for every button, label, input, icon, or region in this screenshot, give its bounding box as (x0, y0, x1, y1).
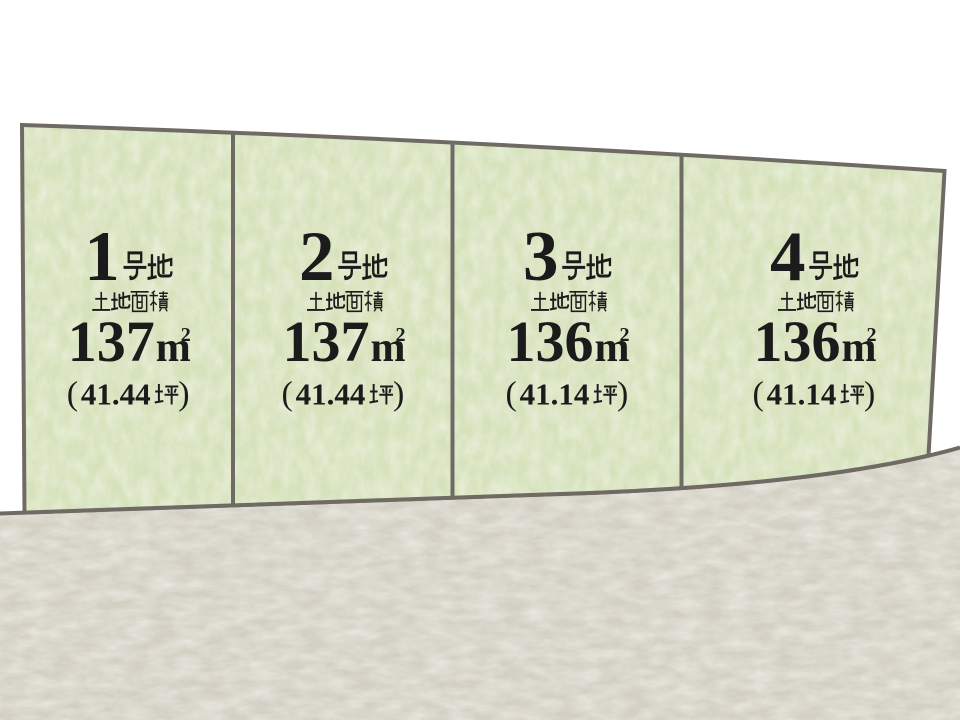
svg-text:): ) (617, 376, 628, 413)
svg-text:137: 137 (68, 309, 155, 374)
svg-text:): ) (864, 376, 875, 413)
svg-text:136: 136 (507, 309, 594, 374)
svg-text:2: 2 (181, 324, 191, 346)
svg-text:41.14: 41.14 (767, 377, 837, 412)
svg-text:(: ( (506, 376, 517, 413)
svg-text:): ) (393, 376, 404, 413)
svg-text:2: 2 (620, 324, 630, 346)
svg-text:41.44: 41.44 (81, 377, 151, 412)
svg-text:3: 3 (523, 218, 559, 296)
svg-text:2: 2 (867, 324, 877, 346)
svg-text:2: 2 (396, 324, 406, 346)
svg-text:4: 4 (770, 218, 806, 296)
svg-text:136: 136 (754, 309, 841, 374)
svg-text:): ) (178, 376, 189, 413)
svg-text:2: 2 (299, 218, 335, 296)
svg-text:(: ( (67, 376, 78, 413)
svg-text:41.44: 41.44 (296, 377, 366, 412)
svg-text:41.14: 41.14 (520, 377, 590, 412)
svg-text:1: 1 (84, 218, 120, 296)
svg-text:(: ( (753, 376, 764, 413)
svg-text:137: 137 (283, 309, 370, 374)
svg-text:(: ( (282, 376, 293, 413)
